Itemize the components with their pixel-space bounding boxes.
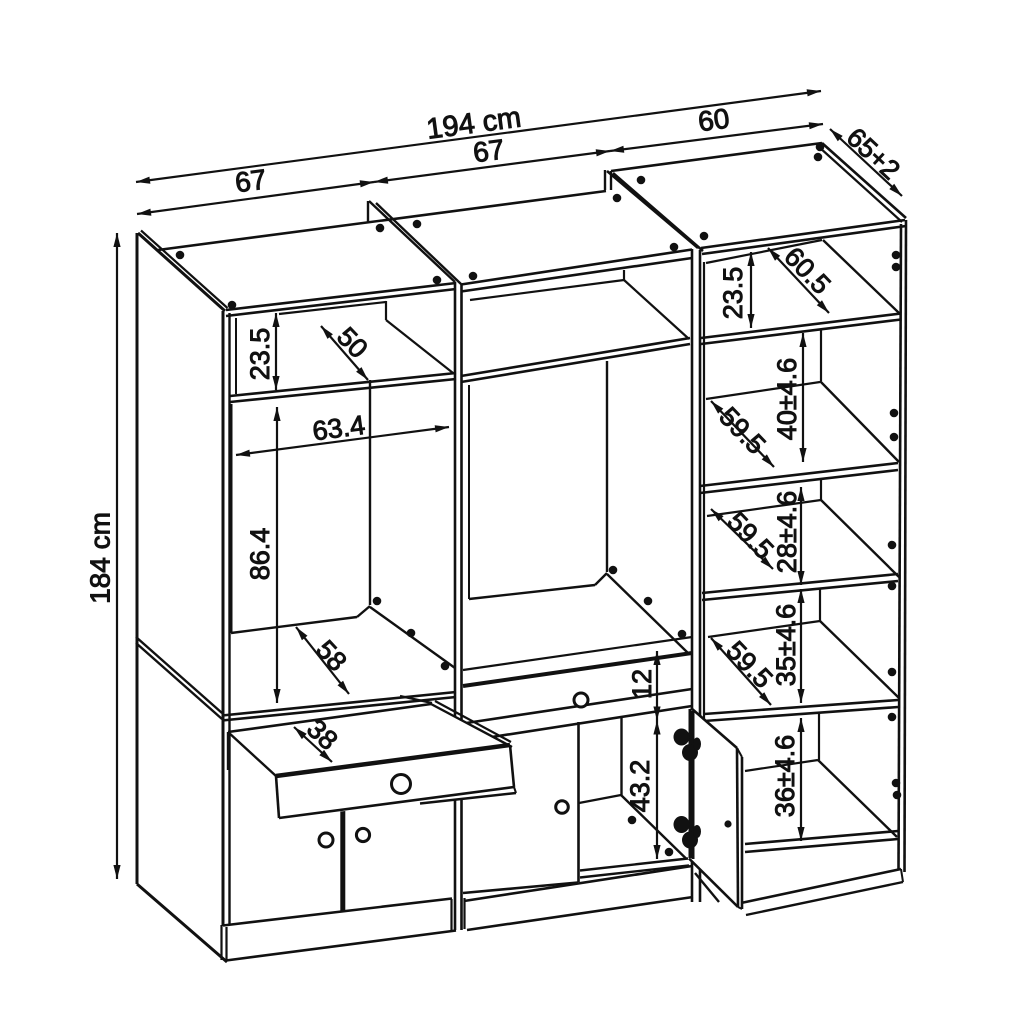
svg-text:28±4.6: 28±4.6 xyxy=(772,491,802,573)
svg-text:59.5: 59.5 xyxy=(713,401,771,460)
svg-text:59.5: 59.5 xyxy=(720,635,778,694)
svg-text:59.5: 59.5 xyxy=(721,506,779,565)
svg-text:12: 12 xyxy=(627,669,657,699)
svg-text:86.4: 86.4 xyxy=(245,528,275,581)
svg-text:67: 67 xyxy=(471,133,506,168)
svg-text:60.5: 60.5 xyxy=(778,241,836,300)
svg-text:60: 60 xyxy=(696,102,731,137)
svg-text:184 cm: 184 cm xyxy=(84,512,115,604)
svg-text:43.2: 43.2 xyxy=(625,760,655,813)
svg-text:36±4.6: 36±4.6 xyxy=(770,735,800,817)
svg-text:67: 67 xyxy=(233,163,268,198)
svg-text:58: 58 xyxy=(310,635,352,677)
svg-text:23.5: 23.5 xyxy=(718,267,748,320)
svg-text:63.4: 63.4 xyxy=(311,410,367,447)
svg-text:50: 50 xyxy=(331,321,373,363)
svg-text:40±4.6: 40±4.6 xyxy=(772,358,802,440)
svg-text:23.5: 23.5 xyxy=(245,328,275,381)
